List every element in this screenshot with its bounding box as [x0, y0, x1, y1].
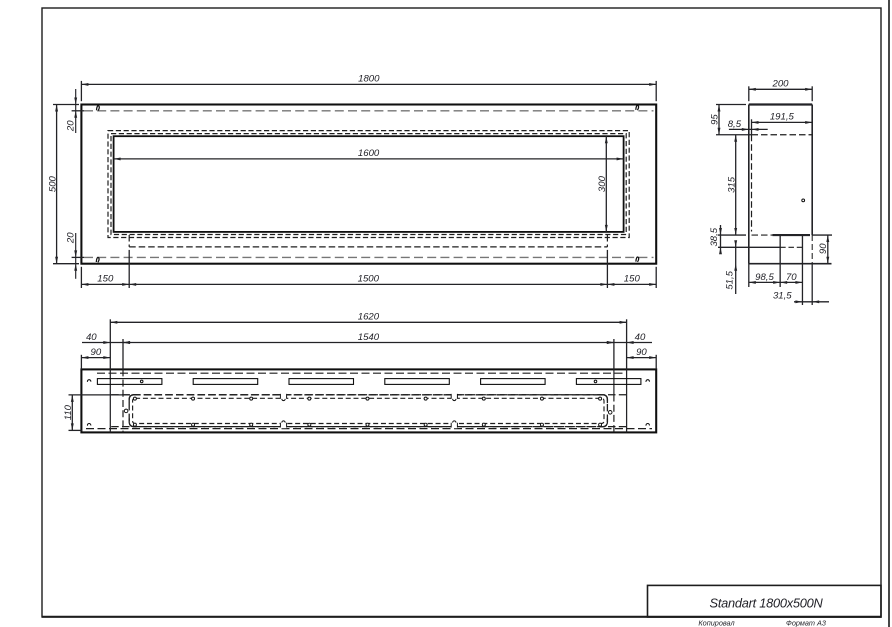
svg-text:98,5: 98,5	[755, 272, 774, 283]
svg-text:51,5: 51,5	[725, 270, 736, 289]
svg-text:500: 500	[47, 175, 58, 192]
svg-text:90: 90	[636, 347, 647, 358]
svg-text:40: 40	[86, 332, 97, 343]
svg-text:95: 95	[710, 114, 721, 125]
svg-text:1540: 1540	[358, 332, 380, 343]
svg-text:150: 150	[624, 274, 641, 285]
svg-text:Формат А3: Формат А3	[786, 618, 826, 627]
svg-text:90: 90	[818, 243, 829, 254]
svg-text:20: 20	[65, 232, 76, 244]
svg-text:1800: 1800	[358, 74, 380, 85]
svg-text:300: 300	[597, 175, 608, 192]
svg-text:40: 40	[635, 332, 646, 343]
svg-text:Standart 1800x500N: Standart 1800x500N	[710, 595, 824, 610]
svg-text:315: 315	[726, 176, 737, 193]
svg-text:1500: 1500	[358, 274, 380, 285]
svg-text:70: 70	[786, 272, 797, 283]
svg-text:Копировал: Копировал	[698, 618, 734, 627]
svg-text:8,5: 8,5	[728, 119, 742, 130]
svg-text:90: 90	[91, 347, 102, 358]
svg-text:31,5: 31,5	[773, 291, 792, 302]
svg-text:191,5: 191,5	[770, 112, 795, 123]
svg-text:110: 110	[63, 404, 74, 420]
svg-text:150: 150	[97, 274, 114, 285]
svg-text:20: 20	[65, 120, 76, 132]
svg-text:1600: 1600	[358, 148, 380, 159]
svg-text:38,5: 38,5	[709, 227, 720, 246]
svg-text:1620: 1620	[358, 312, 380, 323]
svg-text:200: 200	[771, 79, 789, 90]
